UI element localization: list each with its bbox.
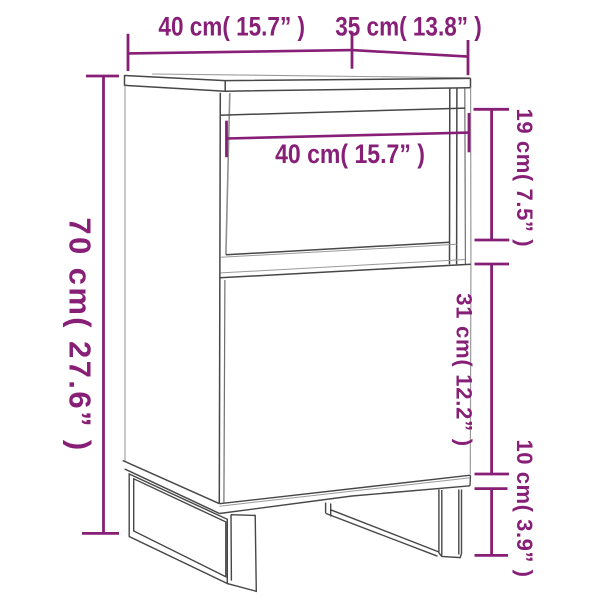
svg-text:31 cm( 12.2” ): 31 cm( 12.2” ) — [452, 293, 477, 447]
svg-text:70 cm( 27.6” ): 70 cm( 27.6” ) — [63, 217, 98, 452]
svg-text:35 cm( 13.8” ): 35 cm( 13.8” ) — [335, 12, 482, 42]
svg-text:40 cm( 15.7” ): 40 cm( 15.7” ) — [275, 139, 425, 169]
svg-text:10 cm( 3.9” ): 10 cm( 3.9” ) — [512, 440, 537, 578]
svg-text:19 cm( 7.5” ): 19 cm( 7.5” ) — [512, 109, 537, 248]
svg-text:40 cm( 15.7” ): 40 cm( 15.7” ) — [158, 12, 305, 42]
